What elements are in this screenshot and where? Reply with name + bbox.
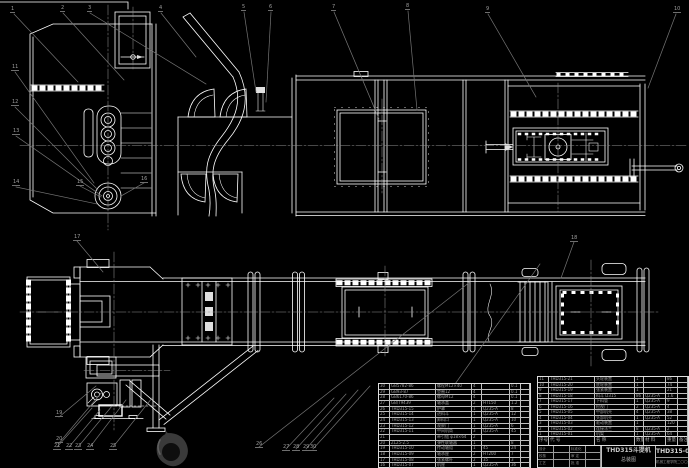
cad-sheet: 1234567891011121314151617181920212223242… <box>0 0 689 468</box>
balloon-number: 10 <box>673 7 681 13</box>
parts-table-left: 30 GB5782-86 螺栓M12×40 4 0.1 29 GB93-87 垫… <box>378 383 531 468</box>
title-block: 设计 标准化 校核 审 定 工艺 批 准 THD315斗提机 总装图 THD31… <box>537 446 689 468</box>
balloon-number: 23 <box>74 444 82 450</box>
balloon-number: 3 <box>87 6 92 12</box>
drawing-title-cell: THD315斗提机 总装图 <box>602 446 656 467</box>
drawing-org: 机械工程学院二〇〇六 <box>656 458 688 466</box>
bucket-bolt <box>256 87 265 93</box>
drawing-number-cell: THD315-00 机械工程学院二〇〇六 <box>656 446 688 467</box>
balloon-number: 5 <box>241 5 246 11</box>
head-top-box <box>115 12 150 68</box>
casing <box>292 72 645 217</box>
balloon-number: 6 <box>268 5 273 11</box>
balloon-number: 25 <box>109 444 117 450</box>
balloon-number: 18 <box>570 236 578 242</box>
balloon-number: 16 <box>140 177 148 183</box>
tail-section <box>486 73 683 213</box>
balloon-number: 11 <box>11 65 19 71</box>
inspection-door-elevation <box>335 108 429 187</box>
balloon-number: 7 <box>331 5 336 11</box>
balloon-number: 4 <box>158 6 163 12</box>
watermark-blob <box>157 431 188 466</box>
plan-head <box>27 260 163 365</box>
balloon-number: 12 <box>11 100 19 106</box>
balloon-number: 24 <box>86 444 94 450</box>
balloon-number: 14 <box>12 180 20 186</box>
balloon-number: 1 <box>10 7 15 13</box>
balloon-number: 30 <box>309 445 317 451</box>
motor <box>99 405 122 416</box>
balloon-number: 28 <box>292 445 300 451</box>
drawing-number: THD315-00 <box>656 446 688 458</box>
discharge-chute <box>183 13 245 216</box>
elevation-view <box>20 5 688 230</box>
take-up-screw <box>630 159 683 177</box>
balloon-number: 8 <box>405 4 410 10</box>
parts-table-right: 11 THD315-21 头轮装置 1 86 10 THD315-20 底轮装置… <box>537 376 689 437</box>
drawing-title: THD315斗提机 <box>602 446 655 456</box>
balloon-number: 13 <box>12 129 20 135</box>
buckets <box>178 87 292 215</box>
balloon-number: 19 <box>55 411 63 417</box>
signature-row: 工艺 批 准 <box>538 460 601 467</box>
parts-table-header-row: 序号 代 号 名 称 数量 材 料 重量 备注 <box>538 437 688 445</box>
balloon-number: 15 <box>76 180 84 186</box>
balloon-number: 22 <box>65 444 73 450</box>
signature-grid: 设计 标准化 校核 审 定 工艺 批 准 <box>538 446 602 467</box>
drawing-subtitle: 总装图 <box>602 456 655 465</box>
signature-row: 校核 审 定 <box>538 453 601 460</box>
balloon-number: 27 <box>282 445 290 451</box>
inspection-door-plan <box>336 273 432 353</box>
balloon-number: 21 <box>53 444 61 450</box>
signature-row: 设计 标准化 <box>538 446 601 453</box>
balloon-number: 17 <box>73 235 81 241</box>
balloon-number: 26 <box>255 442 263 448</box>
parts-table-row: 16 THD315-07 机座 1 Q235-A 36 <box>379 463 530 468</box>
parts-table-header: 序号 代 号 名 称 数量 材 料 重量 备注 <box>537 437 689 446</box>
elevation-centerlines <box>20 5 688 230</box>
balloon-number: 9 <box>485 7 490 13</box>
balloon-number: 2 <box>60 6 65 12</box>
